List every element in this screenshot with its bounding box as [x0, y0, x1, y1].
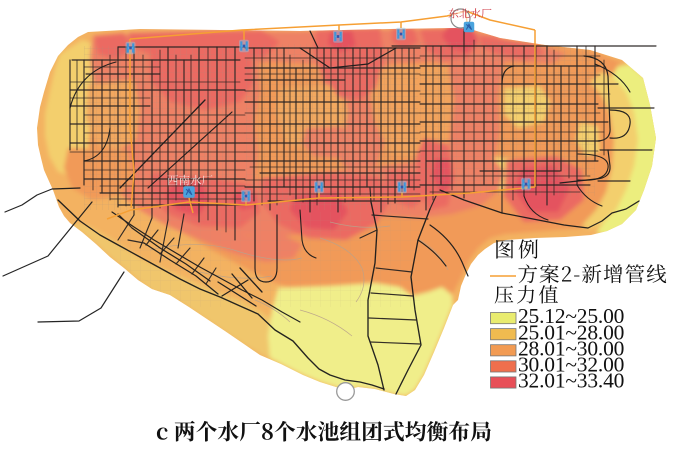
svg-text:32.01~33.40: 32.01~33.40 [518, 369, 624, 393]
